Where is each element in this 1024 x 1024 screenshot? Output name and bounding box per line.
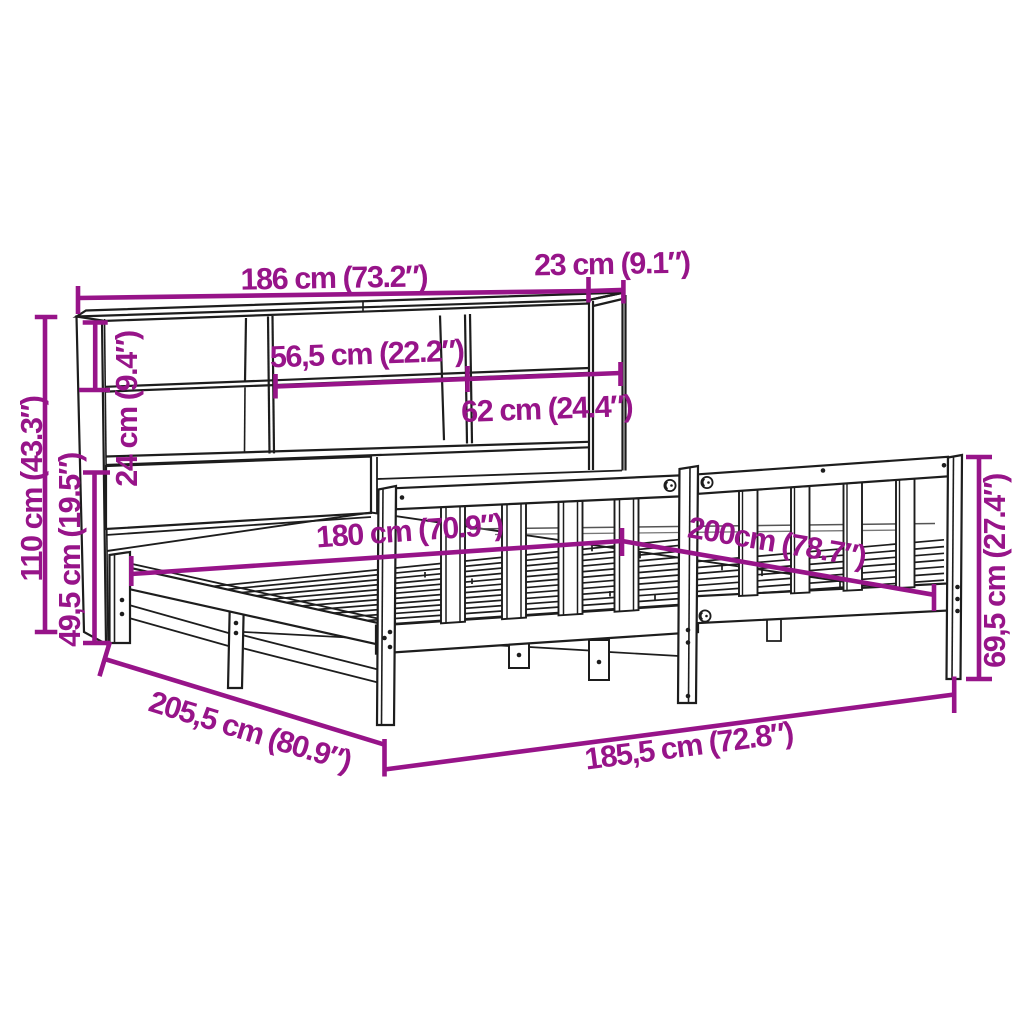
svg-text:24 cm (9.4″): 24 cm (9.4″) bbox=[110, 331, 144, 487]
svg-text:186 cm (73.2″): 186 cm (73.2″) bbox=[240, 259, 427, 296]
svg-text:110 cm (43.3″): 110 cm (43.3″) bbox=[15, 396, 49, 581]
svg-text:49,5 cm (19.5″): 49,5 cm (19.5″) bbox=[53, 453, 87, 647]
svg-text:62 cm (24.4″): 62 cm (24.4″) bbox=[461, 389, 633, 429]
svg-text:56,5 cm (22.2″): 56,5 cm (22.2″) bbox=[269, 334, 464, 375]
svg-text:69,5 cm (27.4″): 69,5 cm (27.4″) bbox=[978, 474, 1012, 668]
svg-text:23 cm (9.1″): 23 cm (9.1″) bbox=[534, 246, 690, 283]
